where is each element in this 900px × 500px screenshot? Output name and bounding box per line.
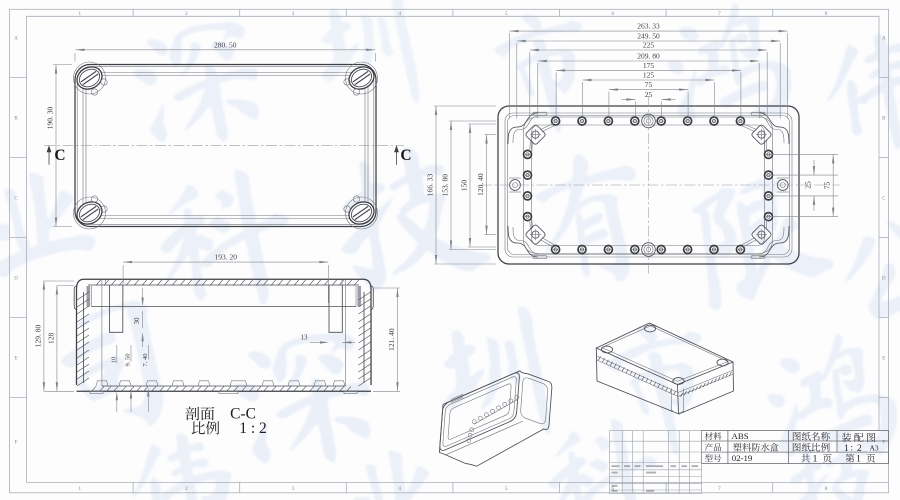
svg-text:2: 2 bbox=[185, 11, 188, 17]
svg-text:4: 4 bbox=[398, 11, 401, 17]
svg-text:2: 2 bbox=[185, 486, 188, 492]
svg-text:153. 80: 153. 80 bbox=[440, 174, 449, 197]
svg-text:5: 5 bbox=[505, 11, 508, 17]
svg-text:C: C bbox=[54, 147, 65, 164]
svg-text:A3: A3 bbox=[870, 443, 879, 452]
svg-text:7. 40: 7. 40 bbox=[142, 354, 149, 367]
svg-text:25: 25 bbox=[804, 181, 813, 189]
svg-text:280. 50: 280. 50 bbox=[214, 40, 237, 49]
svg-text:3: 3 bbox=[292, 486, 295, 492]
svg-text:125: 125 bbox=[643, 71, 655, 80]
svg-text:02-19: 02-19 bbox=[732, 453, 753, 463]
svg-text:D: D bbox=[14, 277, 18, 282]
svg-text:3: 3 bbox=[292, 11, 295, 17]
svg-text:9. 50: 9. 50 bbox=[125, 354, 132, 367]
svg-text:A: A bbox=[882, 37, 886, 42]
svg-text:150: 150 bbox=[460, 180, 469, 192]
svg-text:120. 40: 120. 40 bbox=[476, 173, 485, 196]
svg-text:263. 33: 263. 33 bbox=[637, 22, 660, 31]
svg-text:1: 1 bbox=[844, 444, 849, 454]
svg-text:30: 30 bbox=[133, 317, 141, 325]
svg-text:A: A bbox=[14, 37, 18, 42]
svg-text:E: E bbox=[14, 357, 17, 362]
svg-text:193. 20: 193. 20 bbox=[214, 253, 237, 262]
svg-text::: : bbox=[851, 443, 854, 453]
svg-text:2: 2 bbox=[857, 444, 862, 454]
svg-text:1 : 2: 1 : 2 bbox=[239, 420, 267, 437]
svg-text:225: 225 bbox=[643, 41, 655, 50]
svg-text:209. 80: 209. 80 bbox=[637, 52, 660, 61]
svg-text:75: 75 bbox=[645, 80, 653, 89]
svg-text:7: 7 bbox=[718, 11, 721, 17]
svg-text:8: 8 bbox=[825, 11, 828, 17]
svg-text:1: 1 bbox=[856, 455, 861, 465]
svg-text:10: 10 bbox=[110, 357, 117, 364]
svg-text:13: 13 bbox=[301, 334, 309, 342]
svg-text:25: 25 bbox=[645, 90, 653, 99]
svg-text:1: 1 bbox=[78, 11, 81, 17]
svg-text:121. 40: 121. 40 bbox=[387, 328, 396, 351]
svg-text:128: 128 bbox=[46, 333, 55, 345]
svg-text:129. 80: 129. 80 bbox=[33, 324, 42, 347]
svg-text:4: 4 bbox=[398, 486, 401, 492]
svg-text:1: 1 bbox=[78, 486, 81, 492]
svg-text:E: E bbox=[882, 357, 885, 362]
svg-text:C: C bbox=[400, 147, 411, 164]
svg-text:F: F bbox=[15, 441, 18, 446]
svg-text:5: 5 bbox=[505, 486, 508, 492]
svg-text:75: 75 bbox=[823, 182, 832, 190]
svg-text:249. 50: 249. 50 bbox=[637, 32, 660, 41]
svg-text:7: 7 bbox=[718, 486, 721, 492]
svg-text:166. 33: 166. 33 bbox=[426, 174, 435, 197]
svg-text:ABS: ABS bbox=[732, 431, 749, 441]
svg-text:6: 6 bbox=[611, 11, 614, 17]
svg-text:175: 175 bbox=[643, 61, 655, 70]
svg-text:1: 1 bbox=[813, 455, 818, 465]
svg-text:190. 30: 190. 30 bbox=[46, 107, 55, 130]
svg-text:8: 8 bbox=[825, 486, 828, 492]
svg-text:D: D bbox=[882, 277, 886, 282]
